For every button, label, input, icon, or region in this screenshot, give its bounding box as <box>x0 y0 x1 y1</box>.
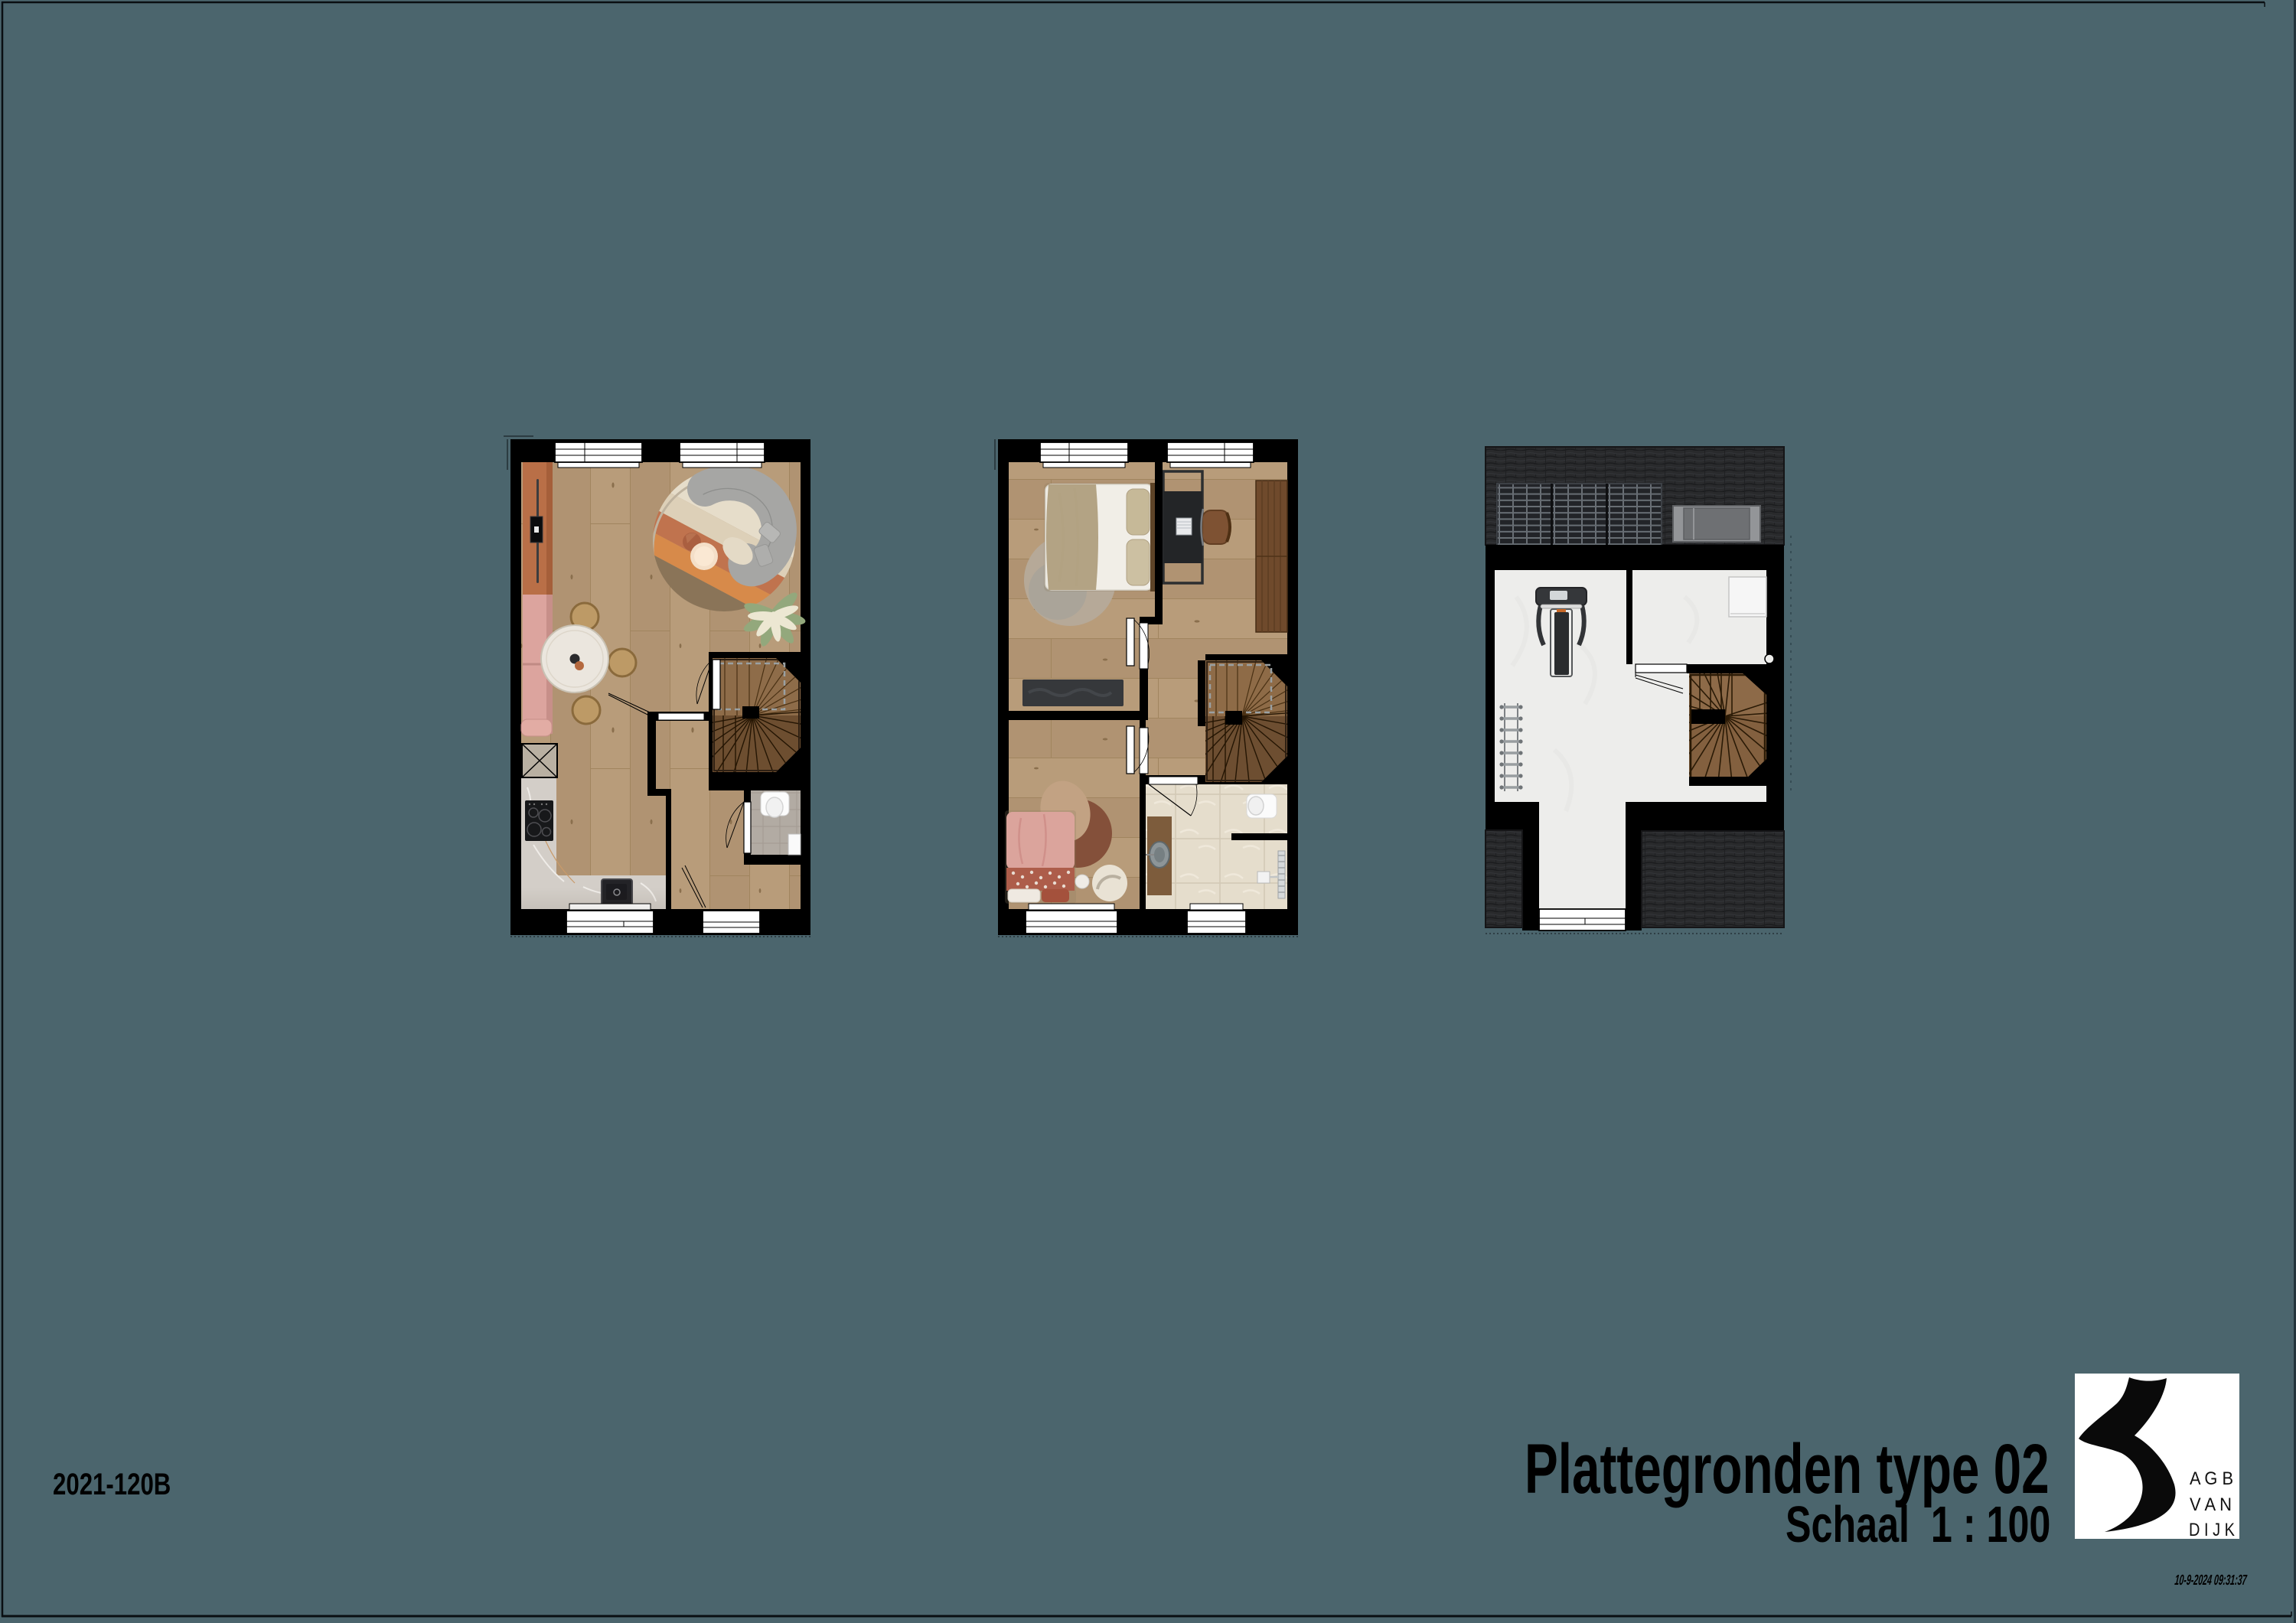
svg-text:D I J K: D I J K <box>2189 1520 2235 1540</box>
svg-text:V A N: V A N <box>2190 1494 2232 1515</box>
svg-text:2021-120B: 2021-120B <box>53 1467 171 1501</box>
svg-text:10-9-2024 09:31:37: 10-9-2024 09:31:37 <box>2174 1572 2249 1589</box>
svg-text:A G B: A G B <box>2190 1468 2233 1489</box>
svg-text:Schaal 1 : 100: Schaal 1 : 100 <box>1786 1495 2050 1553</box>
